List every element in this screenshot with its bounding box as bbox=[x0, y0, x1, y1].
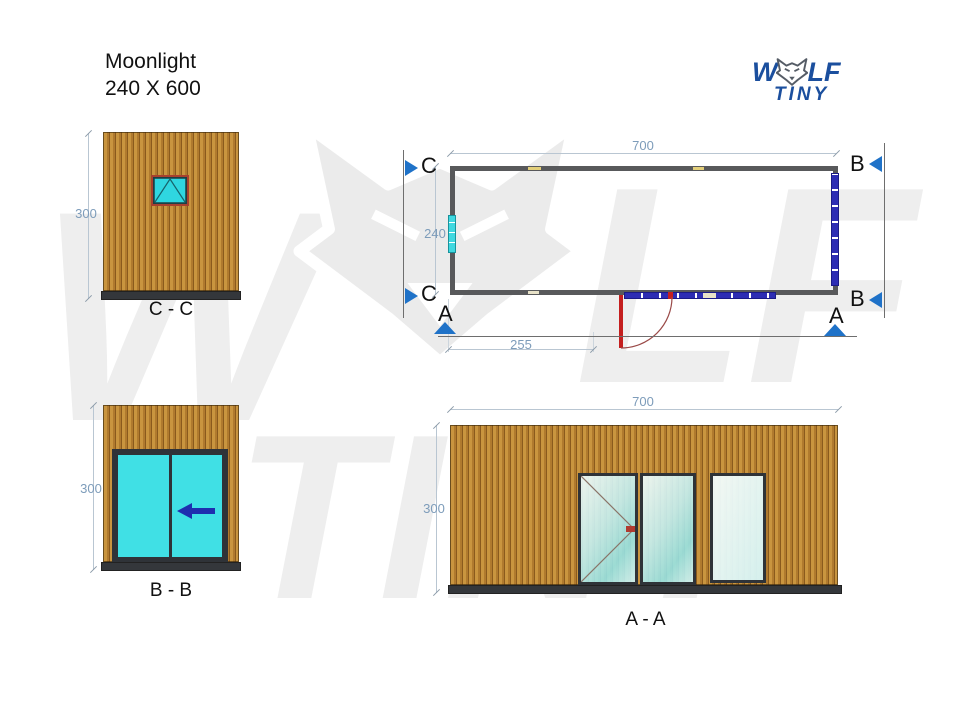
aa-baseplate bbox=[448, 585, 842, 594]
bb-door-panel-left bbox=[118, 455, 169, 557]
aa-fixed-glass-panel bbox=[640, 473, 696, 585]
logo-line2: TINY bbox=[774, 84, 872, 106]
plan-wall-mark bbox=[693, 167, 704, 170]
model-size: 240 X 600 bbox=[105, 75, 201, 102]
wolf-tiny-watermark: W LF TINY bbox=[0, 0, 960, 720]
cc-wood-wall bbox=[103, 132, 239, 291]
door-handle-icon bbox=[626, 526, 635, 532]
section-marker-b-top: B bbox=[850, 153, 865, 175]
logo-line1: W LF bbox=[752, 58, 872, 86]
wolf-tiny-logo: W LF TINY bbox=[752, 58, 872, 106]
section-triangle-up-icon bbox=[434, 322, 456, 334]
door-opening-symbol bbox=[581, 476, 635, 582]
cc-window bbox=[151, 175, 189, 206]
plan-width-dimension: 700 bbox=[618, 139, 668, 152]
door-swing-arc bbox=[619, 295, 679, 353]
bb-height-dimension: 300 bbox=[69, 482, 113, 495]
plan-depth-dimension: 240 bbox=[413, 227, 457, 240]
slide-direction-arrow-icon bbox=[177, 502, 217, 520]
section-line-b bbox=[884, 143, 885, 318]
section-triangle-left-icon bbox=[869, 292, 882, 308]
window-opening-triangle-icon bbox=[153, 177, 187, 204]
plan-wall-mark bbox=[528, 167, 541, 170]
plan-sliding-door-right-wall bbox=[831, 173, 839, 286]
cc-view-label: C - C bbox=[131, 300, 211, 319]
plan-walls bbox=[450, 166, 838, 295]
plan-wall-mark bbox=[528, 291, 539, 294]
wolf-head-icon bbox=[776, 58, 808, 86]
section-triangle-left-icon bbox=[869, 156, 882, 172]
section-triangle-right-icon bbox=[405, 288, 418, 304]
section-line-a bbox=[438, 336, 857, 337]
plan-door-offset-dimension: 255 bbox=[499, 338, 543, 351]
bb-sliding-door bbox=[112, 449, 228, 563]
plan-glazing-break bbox=[703, 293, 716, 298]
aa-view-label: A - A bbox=[603, 610, 688, 629]
logo-letter-w: W bbox=[752, 59, 777, 86]
section-triangle-up-icon bbox=[824, 324, 846, 336]
model-name: Moonlight bbox=[105, 48, 201, 75]
section-line-c bbox=[403, 150, 404, 318]
section-marker-c-bottom: C bbox=[421, 283, 437, 305]
cc-height-dimension: 300 bbox=[64, 207, 108, 220]
bb-baseplate bbox=[101, 562, 241, 571]
aa-entrance-door bbox=[578, 473, 638, 585]
aa-window bbox=[710, 473, 766, 583]
plan-width-dimension-line bbox=[450, 153, 836, 154]
section-triangle-right-icon bbox=[405, 160, 418, 176]
aa-height-dimension: 300 bbox=[412, 502, 456, 515]
bb-view-label: B - B bbox=[131, 581, 211, 600]
section-marker-c-top: C bbox=[421, 155, 437, 177]
drawing-sheet: W LF TINY Moonlight 240 X 600 W LF TINY bbox=[0, 0, 960, 720]
logo-letters-lf: LF bbox=[807, 59, 840, 86]
section-marker-b-bottom: B bbox=[850, 288, 865, 310]
aa-width-dimension-line bbox=[450, 409, 838, 410]
drawing-title: Moonlight 240 X 600 bbox=[105, 48, 201, 102]
aa-width-dimension: 700 bbox=[618, 395, 668, 408]
